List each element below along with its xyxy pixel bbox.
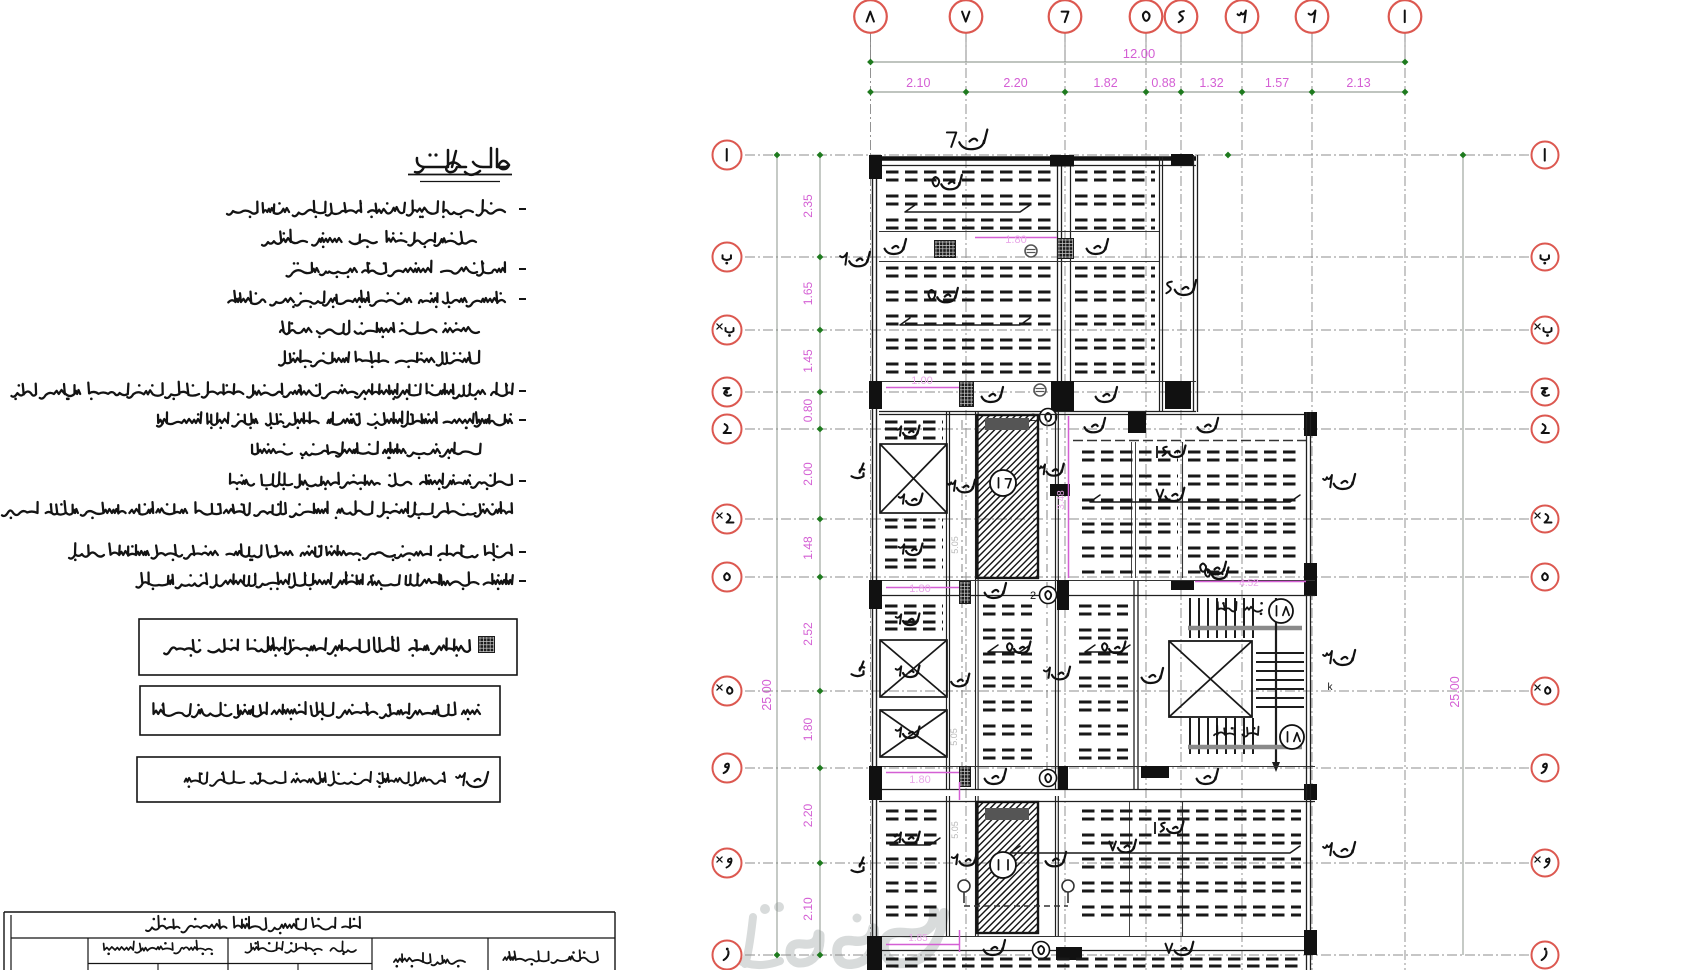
svg-text:1.48: 1.48 xyxy=(801,536,815,560)
svg-text:1.00: 1.00 xyxy=(911,375,932,387)
svg-text:1.85: 1.85 xyxy=(908,933,928,944)
svg-text:2.35: 2.35 xyxy=(801,194,815,218)
svg-text:1.65: 1.65 xyxy=(801,281,815,305)
svg-text:2.10: 2.10 xyxy=(801,897,815,921)
svg-text:1.80: 1.80 xyxy=(1005,234,1026,246)
svg-text:2.00: 2.00 xyxy=(801,462,815,486)
svg-text:2: 2 xyxy=(1030,590,1036,602)
svg-text:2.20: 2.20 xyxy=(801,803,815,827)
svg-text:25.00: 25.00 xyxy=(760,679,774,710)
svg-text:1.80: 1.80 xyxy=(909,774,930,786)
svg-text:25.00: 25.00 xyxy=(1448,676,1462,707)
svg-text:0.88: 0.88 xyxy=(1151,76,1175,90)
svg-text:0.80: 0.80 xyxy=(801,398,815,422)
svg-text:1.57: 1.57 xyxy=(1265,76,1289,90)
svg-text:5.05: 5.05 xyxy=(950,821,960,839)
svg-text:3.48: 3.48 xyxy=(1056,490,1067,510)
svg-text:2.20: 2.20 xyxy=(1003,76,1027,90)
svg-text:k: k xyxy=(1328,682,1334,693)
svg-text:1.80: 1.80 xyxy=(909,583,930,595)
svg-text:5.05: 5.05 xyxy=(950,536,960,554)
svg-text:2.13: 2.13 xyxy=(1346,76,1370,90)
svg-text:2.52: 2.52 xyxy=(801,622,815,646)
svg-text:1.32: 1.32 xyxy=(1199,76,1223,90)
svg-text:5.05: 5.05 xyxy=(949,728,959,746)
svg-text:1.82: 1.82 xyxy=(1093,76,1117,90)
svg-text:1.80: 1.80 xyxy=(801,717,815,741)
svg-text:1.45: 1.45 xyxy=(801,349,815,373)
svg-text:2.10: 2.10 xyxy=(906,76,930,90)
svg-text:12.00: 12.00 xyxy=(1123,46,1156,61)
svg-text:4.52: 4.52 xyxy=(1239,578,1259,589)
